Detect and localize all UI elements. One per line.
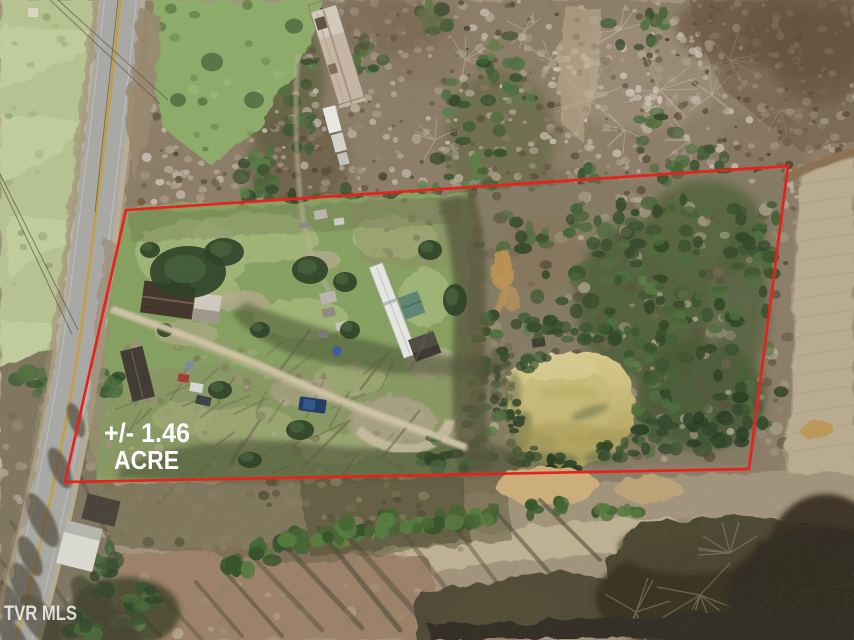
- svg-text:TVR MLS: TVR MLS: [4, 602, 77, 625]
- svg-text:ACRE: ACRE: [114, 445, 179, 475]
- svg-text:+/- 1.46: +/- 1.46: [104, 418, 190, 448]
